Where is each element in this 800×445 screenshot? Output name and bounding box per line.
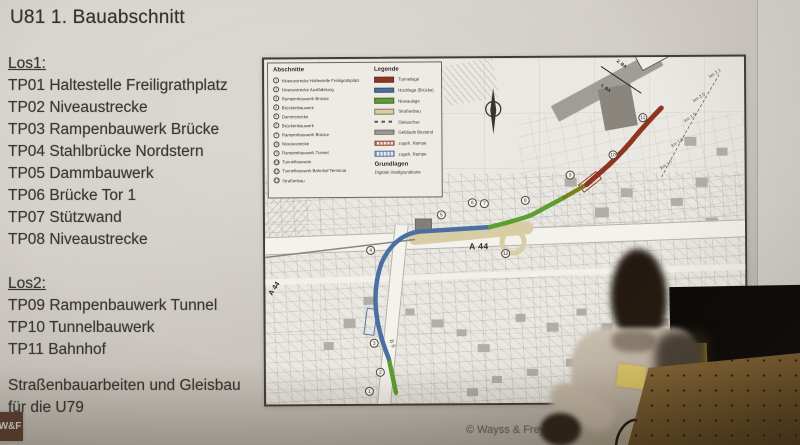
presenter-collar	[612, 330, 656, 352]
abschnitt-number: 3	[273, 96, 279, 102]
a44-label: A 44	[469, 241, 489, 251]
photo-of-presentation-slide: U81 1. Bauabschnitt Los1: TP01 Haltestel…	[0, 0, 800, 445]
legend-entry: Tunnellage	[374, 76, 442, 82]
abschnitt-number: 10	[274, 159, 280, 165]
abschnitt-label: Rampenbauwerk Tunnel	[282, 150, 329, 155]
abschnitt-label: Straßenbau	[282, 178, 304, 183]
abschnitt-label: Dammstrecke	[282, 114, 309, 119]
legend-label: Gleisachse	[398, 119, 419, 124]
legend-label: Niveaulage	[398, 98, 420, 103]
legende-title: Legende	[374, 66, 442, 72]
legend-column: Legende Tunnellage Hochlage (Brücke) Niv…	[374, 66, 443, 174]
list-item-tp01: TP01 Haltestelle Freiligrathplatz	[8, 75, 258, 97]
swatch-gleisachse-dashed	[374, 121, 394, 123]
project-phase-list: Los1: TP01 Haltestelle Freiligrathplatz …	[8, 53, 258, 419]
abschnitt-label: Rampenbauwerk Brücke	[282, 132, 329, 137]
swatch-strassenbau-tan	[374, 109, 394, 115]
abschnitt-label: Tunnelbauwerk Bahnhof Terminal	[282, 168, 346, 173]
route-marker-1: 1	[365, 387, 374, 396]
route-marker-3: 3	[370, 339, 379, 348]
list-item-tp08: TP08 Niveaustrecke	[8, 229, 258, 251]
route-marker-12: 12	[501, 249, 510, 258]
map-legend-box: Abschnitte 1Niveaustrecke Haltestelle Fr…	[267, 61, 443, 198]
north-label: N	[491, 107, 496, 114]
list-item-tp07: TP07 Stützwand	[8, 207, 258, 229]
list-item-tp02: TP02 Niveaustrecke	[8, 97, 258, 119]
abschnitt-label: Niveaustrecke Ausfädelung	[282, 87, 334, 92]
grundlagen-text: Digitale Stadtgrundkarte	[375, 169, 443, 174]
abschnitt-label: Tunnelbauwerk	[282, 160, 311, 165]
wall-edge-line	[757, 0, 758, 292]
swatch-tunnel-red	[374, 77, 394, 83]
route-marker-5: 5	[437, 210, 446, 219]
swatch-ramp-blue-hatch	[375, 151, 395, 157]
route-marker-7: 7	[480, 199, 489, 208]
abschnitt-label: Brückenbauwerk	[282, 105, 314, 110]
route-marker-9: 9	[566, 171, 575, 180]
swatch-bridge-blue	[374, 87, 394, 93]
abschnitt-label: Rampenbauwerk Brücke	[282, 96, 329, 101]
slide-title: U81 1. Bauabschnitt	[10, 7, 185, 29]
route-marker-6: 6	[468, 198, 477, 207]
abschnitt-number: 4	[273, 105, 279, 111]
route-tunnel-red	[586, 108, 661, 184]
legend-entry: zugeh. Rampe	[375, 151, 443, 157]
abschnitt-number: 6	[273, 123, 279, 129]
abschnitt-number: 2	[273, 86, 279, 92]
abschnitt-label: Niveaustrecke	[282, 141, 309, 146]
route-marker-11: 11	[638, 113, 647, 122]
note-line-1: Straßenbauarbeiten und Gleisbau	[8, 375, 258, 397]
legend-label: zugeh. Rampe	[399, 151, 427, 156]
grundlagen-title: Grundlagen	[375, 161, 443, 167]
list-item-tp04: TP04 Stahlbrücke Nordstern	[8, 141, 258, 163]
legend-entry: Gleisachse	[374, 119, 442, 124]
legend-entry: Gebäude Bestand	[374, 129, 442, 135]
legend-label: Straßenbau	[398, 109, 420, 114]
legend-label: zugeh. Rampe	[398, 140, 426, 145]
list-item-tp09: TP09 Rampenbauwerk Tunnel	[8, 295, 258, 317]
swatch-bestand-gray	[374, 130, 394, 136]
abschnitt-label: Niveaustrecke Haltestelle Freiligrathpla…	[282, 77, 360, 82]
list-item-tp05: TP05 Dammbauwerk	[8, 163, 258, 185]
route-marker-8: 8	[521, 196, 530, 205]
route-niveau-south	[389, 359, 396, 393]
los2-heading: Los2:	[8, 273, 258, 295]
abschnitt-number: 7	[273, 132, 279, 138]
legend-entry: Niveaulage	[374, 98, 442, 104]
abschnitt-number: 8	[273, 141, 279, 147]
legend-entry: zugeh. Rampe	[374, 140, 442, 146]
route-marker-10: 10	[609, 150, 618, 159]
swatch-niveau-green	[374, 98, 394, 104]
abschnitt-number: 9	[274, 150, 280, 156]
abschnitt-label: Brückenbauwerk	[282, 123, 314, 128]
north-arrow-icon: N	[484, 88, 502, 134]
list-item-tp03: TP03 Rampenbauwerk Brücke	[8, 119, 258, 141]
abschnitt-number: 12	[274, 177, 280, 183]
abschnitt-number: 1	[273, 77, 279, 83]
wall-background	[758, 0, 800, 300]
los1-heading: Los1:	[8, 53, 258, 75]
legend-label: Gebäude Bestand	[398, 130, 433, 135]
list-item-tp11: TP11 Bahnhof	[8, 339, 258, 361]
abschnitt-number: 5	[273, 114, 279, 120]
legend-label: Hochlage (Brücke)	[398, 87, 434, 92]
list-item-tp06: TP06 Brücke Tor 1	[8, 185, 258, 207]
legend-entry: Straßenbau	[374, 108, 442, 114]
route-marker-4: 4	[366, 246, 375, 255]
legend-entry: Hochlage (Brücke)	[374, 87, 442, 93]
presenter-name-badge	[616, 363, 647, 389]
abschnitt-item: 12Straßenbau	[274, 176, 442, 183]
swatch-ramp-red-hatch	[374, 140, 394, 146]
note-line-2: für die U79	[8, 397, 258, 419]
list-item-tp10: TP10 Tunnelbauwerk	[8, 317, 258, 339]
legend-label: Tunnellage	[398, 77, 419, 82]
abschnitt-number: 11	[274, 168, 280, 174]
route-marker-2: 2	[376, 368, 385, 377]
wf-company-logo: W&F	[0, 412, 23, 441]
presenter-hand	[540, 413, 581, 445]
